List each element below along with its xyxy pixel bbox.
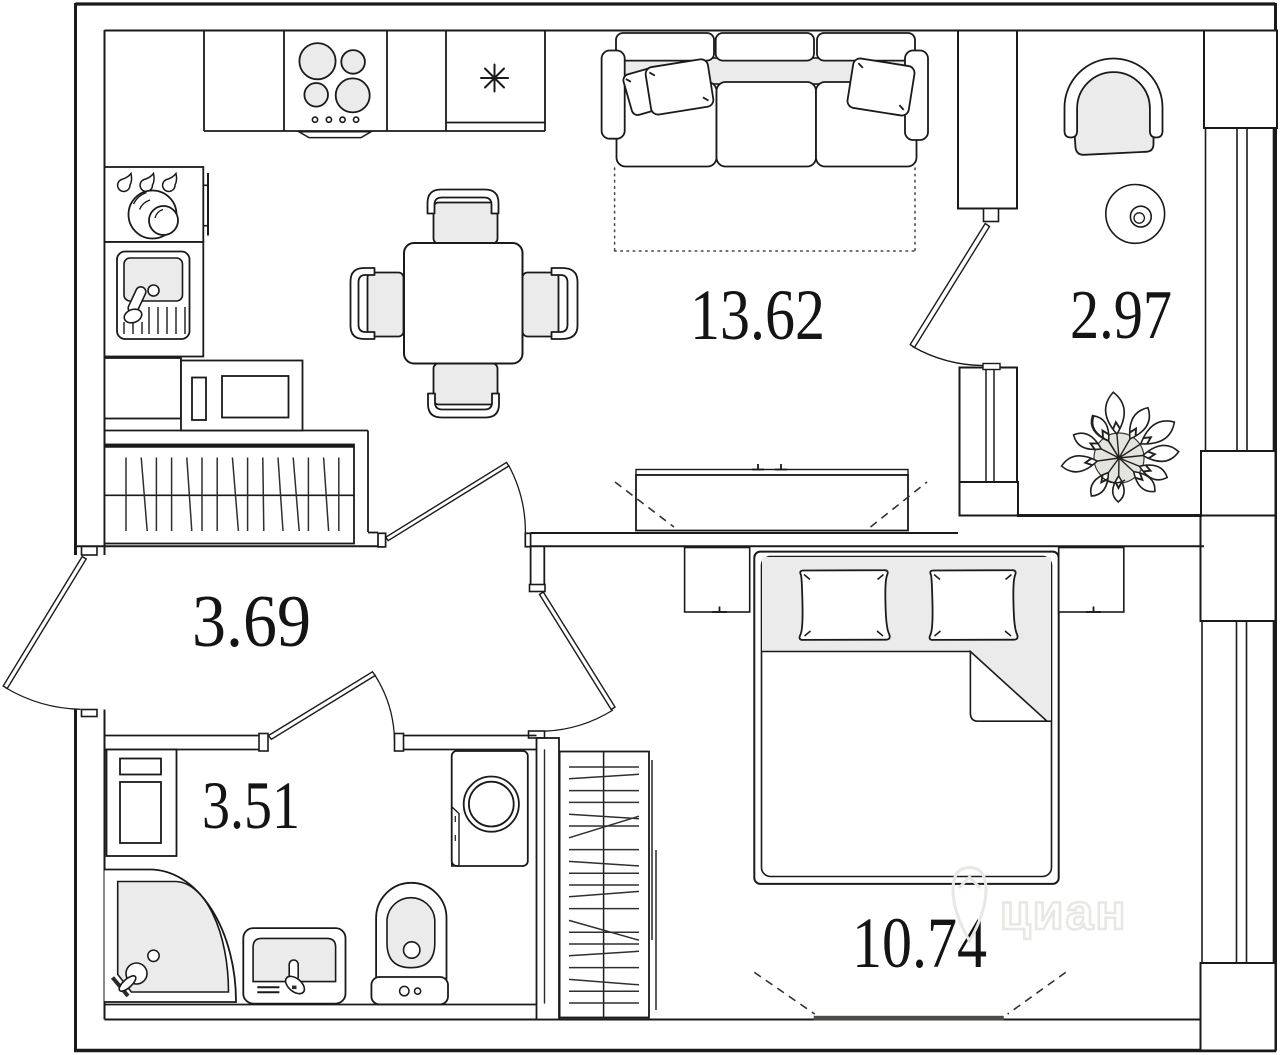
svg-text:3.51: 3.51 [202, 767, 300, 843]
svg-text:3.69: 3.69 [192, 581, 311, 663]
svg-text:циан: циан [1000, 884, 1127, 940]
svg-text:10.74: 10.74 [852, 903, 987, 983]
svg-text:13.62: 13.62 [690, 275, 825, 355]
svg-text:2.97: 2.97 [1070, 277, 1172, 354]
